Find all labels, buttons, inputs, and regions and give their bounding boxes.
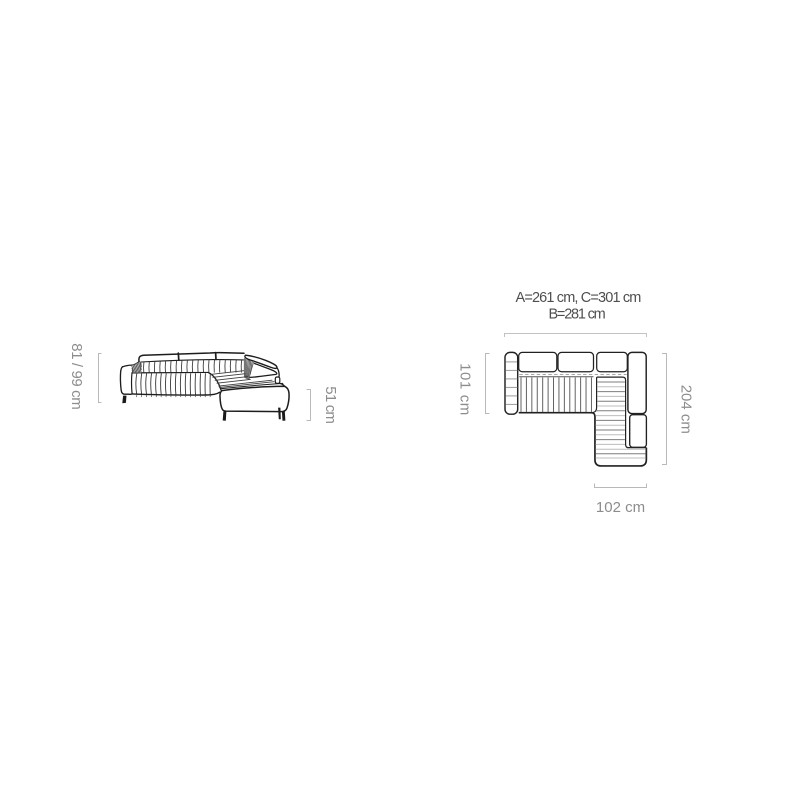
- svg-text:51 cm: 51 cm: [322, 386, 339, 423]
- svg-text:B=281 cm: B=281 cm: [548, 306, 605, 322]
- svg-text:81 / 99 cm: 81 / 99 cm: [68, 343, 85, 409]
- svg-text:102 cm: 102 cm: [596, 499, 645, 516]
- svg-text:101 cm: 101 cm: [457, 363, 474, 416]
- svg-text:204 cm: 204 cm: [678, 385, 695, 434]
- svg-text:A=261 cm, C=301 cm: A=261 cm, C=301 cm: [516, 290, 642, 306]
